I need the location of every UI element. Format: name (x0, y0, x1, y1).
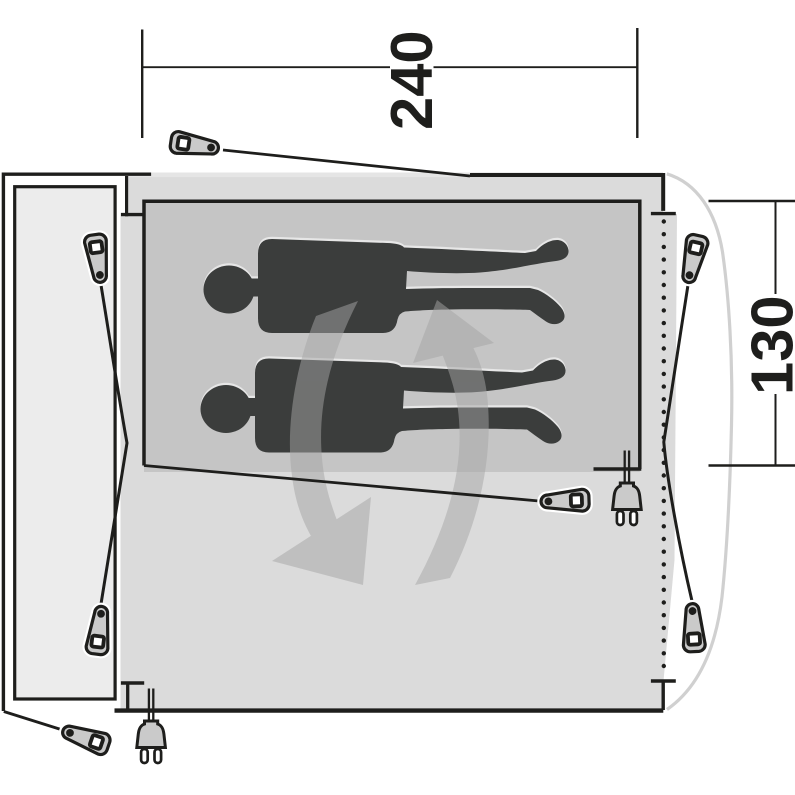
svg-text:130: 130 (738, 295, 795, 395)
svg-text:240: 240 (378, 30, 445, 130)
